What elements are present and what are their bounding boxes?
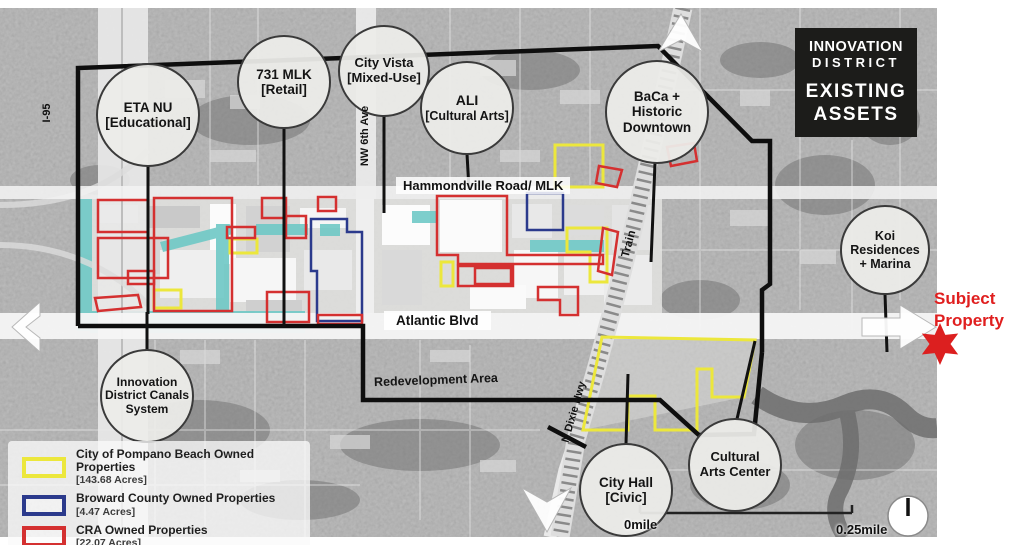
asset-label: Downtown — [623, 120, 691, 135]
legend-row-city: City of Pompano Beach Owned Properties [… — [22, 448, 302, 486]
asset-label: System — [126, 403, 169, 416]
road-label-hammondville: Hammondville Road/ MLK — [396, 177, 570, 194]
asset-label: City Hall — [599, 475, 653, 490]
legend-row-county: Broward County Owned Properties [4.47 Ac… — [22, 492, 302, 517]
asset-label: Arts Center — [700, 465, 771, 480]
asset-label: Koi — [875, 229, 895, 243]
asset-circle-731-mlk: 731 MLK [Retail] — [237, 35, 331, 129]
asset-label: Residences — [850, 243, 919, 257]
asset-label: [Civic] — [605, 490, 646, 505]
asset-label: [Cultural Arts] — [425, 109, 509, 123]
asset-circle-ali: ALI [Cultural Arts] — [420, 61, 514, 155]
asset-label: Cultural — [710, 450, 759, 465]
asset-label: City Vista — [354, 56, 413, 71]
scale-start-label: 0mile — [624, 517, 657, 532]
legend-label: City of Pompano Beach Owned Properties — [76, 448, 302, 474]
subject-property-label: Subject Property — [934, 288, 1024, 332]
title-line-4: ASSETS — [813, 103, 898, 126]
asset-label: Innovation — [117, 376, 178, 389]
asset-circle-eta-nu: ETA NU [Educational] — [96, 63, 200, 167]
asset-circle-cultural-arts-center: Cultural Arts Center — [688, 418, 782, 512]
title-box: INNOVATION DISTRICT EXISTING ASSETS — [795, 28, 917, 137]
asset-circle-canals-system: Innovation District Canals System — [100, 349, 194, 443]
asset-label: BaCa + — [634, 89, 680, 104]
title-line-3: EXISTING — [806, 80, 907, 103]
scale-end-label: 0.25mile — [836, 522, 887, 537]
asset-label: ETA NU — [124, 100, 173, 115]
road-label-i95: I-95 — [33, 94, 61, 132]
subject-property-line-2: Property — [934, 310, 1024, 332]
north-indicator-icon — [888, 496, 928, 536]
asset-label: ALI — [456, 93, 479, 109]
asset-label: 731 MLK — [256, 67, 312, 82]
innovation-district-map: INNOVATION DISTRICT EXISTING ASSETS ETA … — [0, 0, 1024, 545]
legend-acres: [22.07 Acres] — [76, 537, 208, 545]
legend-acres: [143.68 Acres] — [76, 474, 302, 486]
legend-swatch-city-yellow — [22, 457, 66, 478]
asset-label: [Retail] — [261, 82, 307, 97]
legend-swatch-county-blue — [22, 495, 66, 516]
legend-row-cra: CRA Owned Properties [22.07 Acres] — [22, 524, 302, 545]
title-line-1: INNOVATION — [809, 39, 903, 56]
asset-label: + Marina — [859, 257, 910, 271]
asset-circle-baca-historic-downtown: BaCa + Historic Downtown — [605, 60, 709, 164]
legend-label: Broward County Owned Properties — [76, 492, 275, 505]
road-label-atlantic-blvd: Atlantic Blvd — [384, 311, 491, 330]
title-line-2: DISTRICT — [812, 56, 900, 71]
asset-circle-koi-residences-marina: Koi Residences + Marina — [840, 205, 930, 295]
asset-label: [Educational] — [105, 115, 191, 130]
legend: City of Pompano Beach Owned Properties [… — [8, 441, 310, 545]
asset-label: Historic — [632, 104, 682, 119]
legend-swatch-cra-red — [22, 526, 66, 545]
asset-circle-city-vista: City Vista [Mixed-Use] — [338, 25, 430, 117]
asset-label: District Canals — [105, 389, 189, 402]
road-label-nw-6th-ave: NW 6th Ave — [355, 101, 375, 171]
subject-property-line-1: Subject — [934, 288, 1024, 310]
asset-label: [Mixed-Use] — [347, 71, 421, 86]
legend-acres: [4.47 Acres] — [76, 506, 275, 518]
legend-label: CRA Owned Properties — [76, 524, 208, 537]
